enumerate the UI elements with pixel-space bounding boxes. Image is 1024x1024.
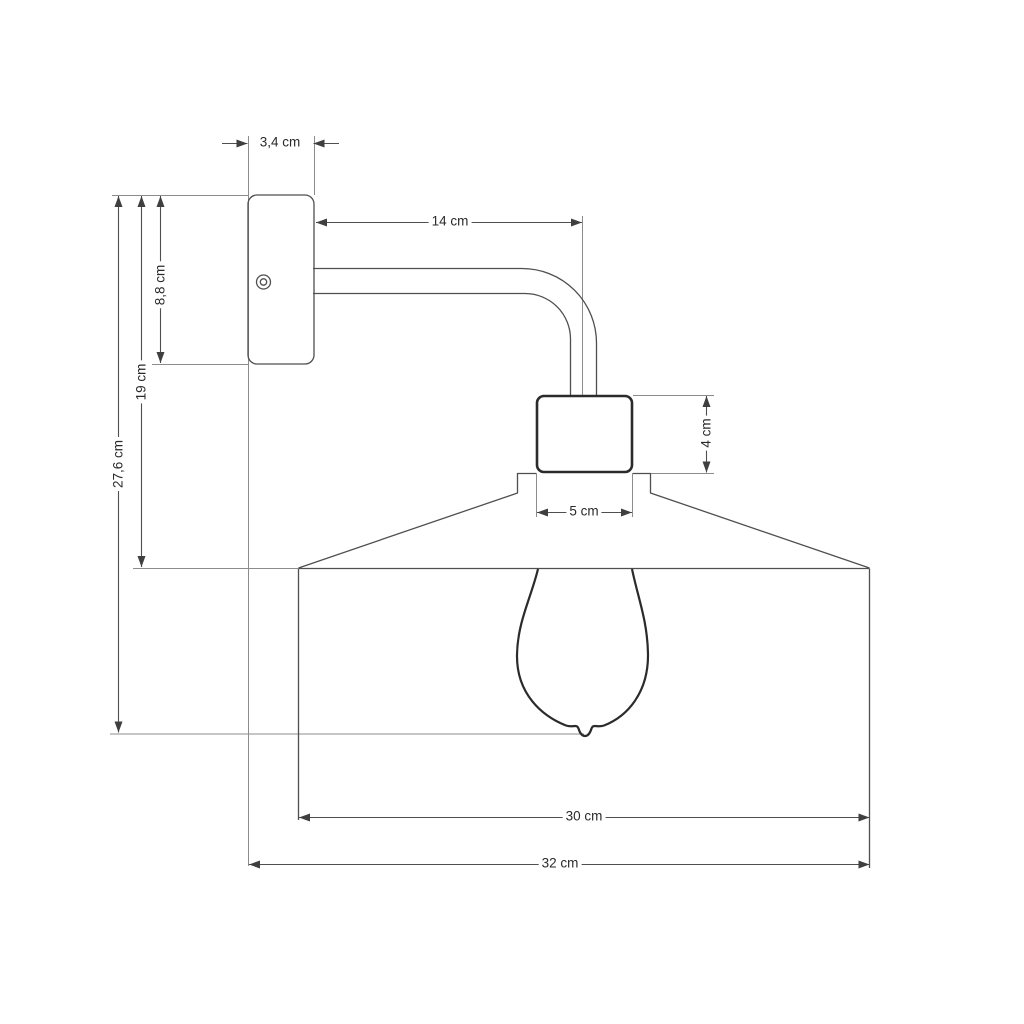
wall-lamp-dimension-drawing xyxy=(0,0,1024,1024)
screw-hole xyxy=(257,275,271,289)
dim-label-arm-length: 14 cm xyxy=(429,215,472,230)
lamp-socket xyxy=(537,396,632,472)
light-bulb xyxy=(517,569,648,736)
dim-label-shade-diameter: 30 cm xyxy=(563,810,606,825)
wall-plate xyxy=(248,195,314,364)
lamp-outline xyxy=(248,195,870,868)
dim-label-height-to-shade: 19 cm xyxy=(135,361,150,404)
dim-label-overall-width: 32 cm xyxy=(539,857,582,872)
arm-tube xyxy=(313,269,597,397)
dim-label-plate-height: 8,8 cm xyxy=(154,262,169,309)
dim-label-overall-height: 27,6 cm xyxy=(112,437,127,491)
dimension-lines xyxy=(119,144,870,865)
dim-label-plate-width: 3,4 cm xyxy=(257,136,304,151)
dim-label-socket-width: 5 cm xyxy=(566,505,601,520)
dim-label-socket-height: 4 cm xyxy=(700,415,715,450)
extension-lines xyxy=(110,136,714,866)
technical-drawing-canvas: 3,4 cm 14 cm 8,8 cm 19 cm 27,6 cm 4 cm 5… xyxy=(0,0,1024,1024)
